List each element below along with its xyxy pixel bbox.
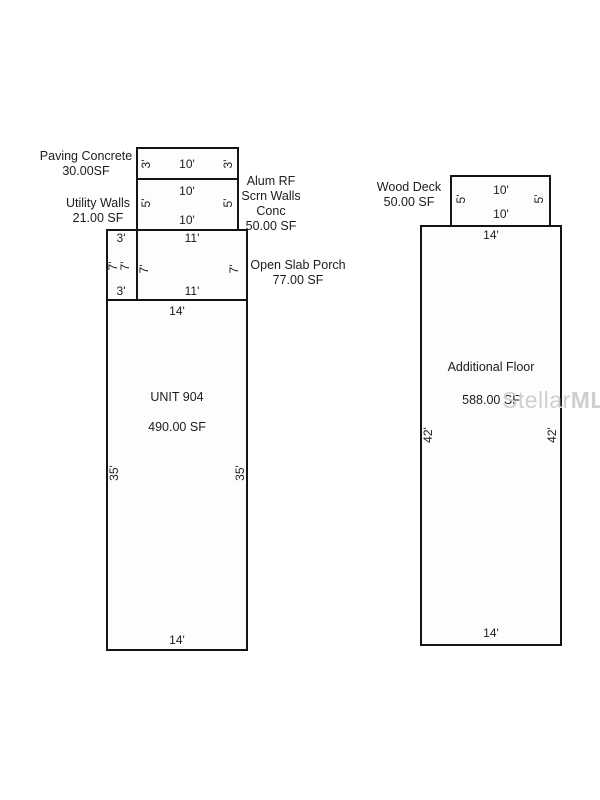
watermark-stellar-text: Stellar bbox=[502, 387, 571, 413]
unit-904-area: 490.00 SF bbox=[148, 420, 206, 434]
utility-walls-label-line2: 21.00 SF bbox=[48, 211, 148, 226]
porch-dim-right: 7' bbox=[227, 265, 241, 274]
stellar-mls-watermark: StellarMLS bbox=[502, 387, 600, 414]
alum-dim-bottom: 10' bbox=[179, 213, 195, 227]
porch-dim-bottom: 11' bbox=[185, 284, 200, 298]
porch-dim-top: 11' bbox=[185, 231, 200, 245]
watermark-mls-text: MLS bbox=[571, 387, 600, 413]
additional-floor-title: Additional Floor bbox=[448, 360, 535, 374]
alum-screen-walls-label-line2: Scrn Walls bbox=[221, 189, 321, 204]
wood-deck-label-line2: 50.00 SF bbox=[359, 195, 459, 210]
floor-dim-left: 42' bbox=[421, 427, 435, 443]
unit-dim-bottom: 14' bbox=[169, 633, 185, 647]
paving-dim-right: 3' bbox=[221, 160, 235, 169]
deck-dim-bottom: 10' bbox=[493, 207, 509, 221]
paving-dim-center: 10' bbox=[179, 157, 195, 171]
alum-screen-walls-label-line4: 50.00 SF bbox=[221, 219, 321, 234]
floor-dim-top: 14' bbox=[483, 228, 499, 242]
unit-904-title: UNIT 904 bbox=[150, 390, 203, 404]
utility-dim-bottom: 3' bbox=[117, 284, 126, 298]
wood-deck-label: Wood Deck 50.00 SF bbox=[359, 180, 459, 210]
open-slab-porch-label: Open Slab Porch 77.00 SF bbox=[248, 258, 348, 288]
alum-screen-walls-label-line1: Alum RF bbox=[221, 174, 321, 189]
porch-dim-left: 7' bbox=[137, 265, 151, 274]
floor-plan-canvas: Paving Concrete 30.00SF Utility Walls 21… bbox=[0, 0, 600, 800]
open-slab-porch-label-line2: 77.00 SF bbox=[248, 273, 348, 288]
utility-dim-top: 3' bbox=[117, 231, 126, 245]
alum-dim-right: 5' bbox=[221, 199, 235, 208]
alum-dim-left: 5' bbox=[139, 199, 153, 208]
open-slab-porch-label-line1: Open Slab Porch bbox=[248, 258, 348, 273]
paving-concrete-label-line2: 30.00SF bbox=[36, 164, 136, 179]
floor-dim-bottom: 14' bbox=[483, 626, 499, 640]
wood-deck-label-line1: Wood Deck bbox=[359, 180, 459, 195]
paving-dim-left: 3' bbox=[139, 160, 153, 169]
alum-dim-top: 10' bbox=[179, 184, 195, 198]
deck-dim-left: 5' bbox=[454, 195, 468, 204]
paving-concrete-label-line1: Paving Concrete bbox=[36, 149, 136, 164]
alum-screen-walls-label-line3: Conc bbox=[221, 204, 321, 219]
deck-dim-right: 5' bbox=[532, 195, 546, 204]
paving-concrete-label: Paving Concrete 30.00SF bbox=[36, 149, 136, 179]
utility-walls-label-line1: Utility Walls bbox=[48, 196, 148, 211]
utility-walls-label: Utility Walls 21.00 SF bbox=[48, 196, 148, 226]
unit-dim-top: 14' bbox=[169, 304, 185, 318]
additional-floor-outline bbox=[420, 225, 562, 646]
utility-dim-right: 7' bbox=[118, 262, 132, 271]
deck-dim-top: 10' bbox=[493, 183, 509, 197]
floor-dim-right: 42' bbox=[545, 427, 559, 443]
unit-dim-right: 35' bbox=[233, 465, 247, 481]
unit-dim-left: 35' bbox=[107, 465, 121, 481]
alum-screen-walls-label: Alum RF Scrn Walls Conc 50.00 SF bbox=[221, 174, 321, 234]
unit-904-outline bbox=[106, 299, 248, 651]
